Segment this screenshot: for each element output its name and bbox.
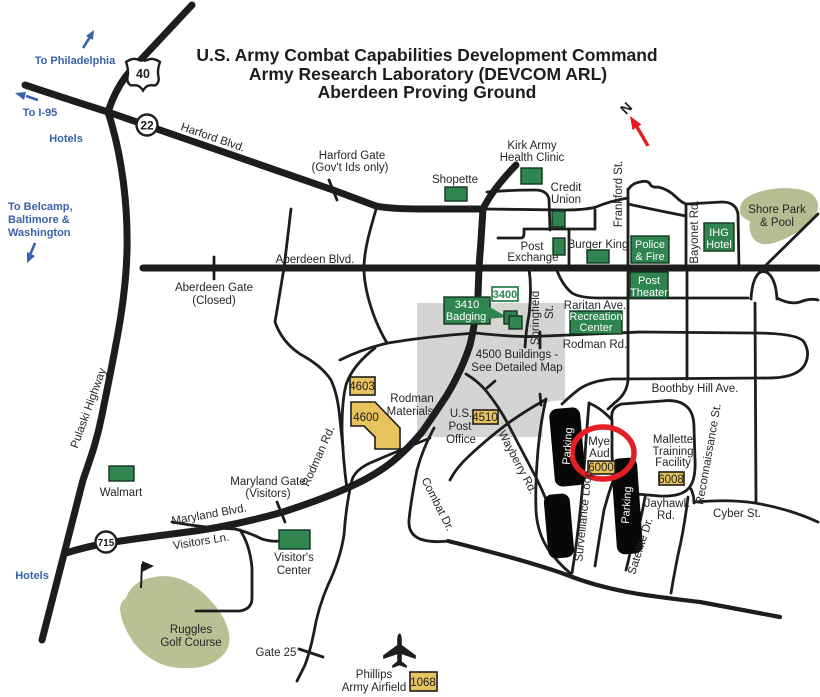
- svg-text:Shopette: Shopette: [432, 174, 478, 186]
- svg-text:Kirk Army: Kirk Army: [507, 140, 556, 152]
- svg-text:See Detailed Map: See Detailed Map: [471, 362, 562, 374]
- svg-text:Credit: Credit: [551, 182, 582, 194]
- svg-text:Hotels: Hotels: [49, 133, 83, 145]
- svg-text:Rodman Rd.: Rodman Rd.: [563, 339, 628, 351]
- svg-text:3400: 3400: [493, 289, 517, 301]
- svg-text:4603: 4603: [349, 381, 375, 393]
- svg-text:Phillips: Phillips: [356, 669, 393, 681]
- svg-text:Mallette: Mallette: [653, 434, 693, 446]
- svg-text:Office: Office: [446, 434, 476, 446]
- svg-text:Rd.: Rd.: [657, 510, 675, 522]
- svg-text:Walmart: Walmart: [100, 487, 143, 499]
- svg-text:To Philadelphia: To Philadelphia: [35, 55, 116, 67]
- svg-text:Facility: Facility: [655, 457, 691, 469]
- svg-text:Center: Center: [579, 322, 612, 334]
- svg-text:4600: 4600: [353, 412, 379, 424]
- svg-text:Cyber St.: Cyber St.: [713, 508, 761, 520]
- svg-text:To I-95: To I-95: [23, 107, 58, 119]
- svg-text:(Gov't Ids only): (Gov't Ids only): [312, 162, 389, 174]
- svg-text:Rodman: Rodman: [390, 393, 433, 405]
- svg-text:715: 715: [98, 538, 115, 549]
- svg-text:Union: Union: [551, 194, 581, 206]
- svg-text:Springfield: Springfield: [530, 291, 542, 345]
- svg-text:Baltimore &: Baltimore &: [8, 214, 70, 226]
- svg-text:Army Airfield: Army Airfield: [342, 682, 407, 694]
- svg-text:Exchange: Exchange: [507, 252, 558, 264]
- svg-text:Aberdeen Blvd.: Aberdeen Blvd.: [276, 254, 355, 266]
- svg-text:Gate 25: Gate 25: [256, 647, 297, 659]
- svg-text:Badging: Badging: [446, 311, 486, 323]
- svg-text:Army Research Laboratory (DEVC: Army Research Laboratory (DEVCOM ARL): [249, 64, 607, 84]
- svg-text:Bayonet Rd.: Bayonet Rd.: [689, 200, 701, 263]
- svg-text:Aud.: Aud.: [589, 448, 613, 460]
- svg-text:Hotel: Hotel: [706, 239, 732, 251]
- svg-text:1068: 1068: [410, 677, 436, 689]
- svg-text:& Pool: & Pool: [760, 217, 794, 229]
- svg-text:Frankford St.: Frankford St.: [613, 161, 625, 227]
- svg-text:Washington: Washington: [8, 227, 71, 239]
- svg-text:40: 40: [136, 67, 150, 81]
- svg-text:Ruggles: Ruggles: [170, 624, 212, 636]
- svg-text:Health Clinic: Health Clinic: [500, 152, 565, 164]
- svg-text:Burger King: Burger King: [568, 239, 629, 251]
- svg-text:U.S.: U.S.: [450, 408, 472, 420]
- svg-text:(Visitors): (Visitors): [245, 488, 290, 500]
- svg-text:3410: 3410: [455, 299, 479, 311]
- svg-text:Hotels: Hotels: [15, 570, 49, 582]
- svg-text:Aberdeen Gate: Aberdeen Gate: [175, 282, 253, 294]
- svg-text:Jayhawk: Jayhawk: [645, 498, 690, 510]
- svg-text:6008: 6008: [658, 474, 684, 486]
- svg-text:4510: 4510: [472, 412, 498, 424]
- svg-text:Myer: Myer: [588, 436, 614, 448]
- svg-text:Maryland Gate: Maryland Gate: [230, 476, 305, 488]
- svg-text:& Fire: & Fire: [635, 251, 664, 263]
- svg-text:(Closed): (Closed): [192, 295, 236, 307]
- svg-text:Shore Park: Shore Park: [748, 204, 806, 216]
- svg-text:Theater: Theater: [630, 287, 668, 299]
- svg-text:St.: St.: [544, 305, 556, 319]
- svg-text:U.S. Army Combat Capabilities: U.S. Army Combat Capabilities Developmen…: [196, 45, 657, 65]
- svg-text:Materials: Materials: [387, 406, 434, 418]
- svg-text:Post: Post: [638, 275, 660, 287]
- svg-text:Aberdeen Proving Ground: Aberdeen Proving Ground: [318, 82, 537, 102]
- svg-text:4500 Buildings -: 4500 Buildings -: [476, 349, 559, 361]
- svg-text:Police: Police: [635, 239, 665, 251]
- svg-text:IHG: IHG: [709, 227, 729, 239]
- svg-text:Visitor's: Visitor's: [274, 552, 314, 564]
- svg-text:Harford Gate: Harford Gate: [319, 150, 385, 162]
- svg-text:To Belcamp,: To Belcamp,: [8, 201, 73, 213]
- svg-text:Golf Course: Golf Course: [160, 637, 221, 649]
- svg-text:6000: 6000: [588, 462, 614, 474]
- svg-text:Boothby Hill Ave.: Boothby Hill Ave.: [652, 383, 739, 395]
- svg-text:Post: Post: [448, 421, 472, 433]
- svg-text:Center: Center: [277, 565, 312, 577]
- svg-text:22: 22: [140, 119, 154, 133]
